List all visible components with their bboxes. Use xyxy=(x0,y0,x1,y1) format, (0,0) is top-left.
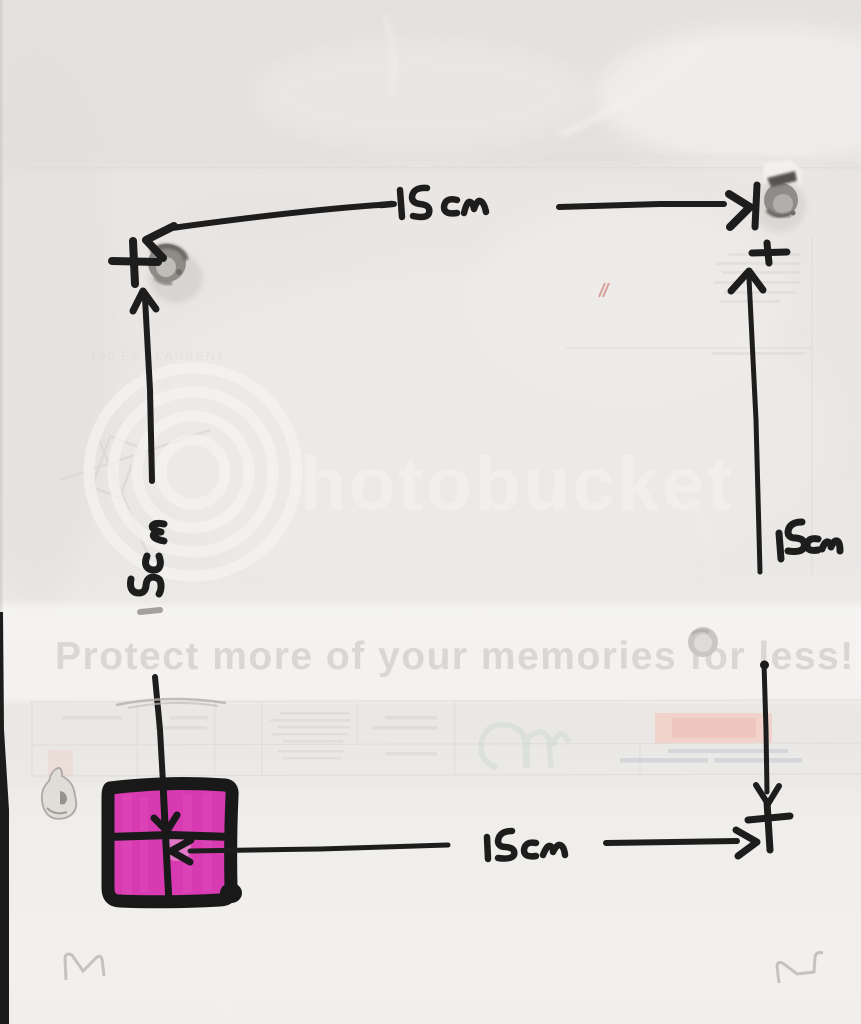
svg-text:190 EST LAURENT: 190 EST LAURENT xyxy=(90,349,226,363)
svg-text:Protect more of your memories: Protect more of your memories for less! xyxy=(55,635,855,678)
svg-text:hotobucket: hotobucket xyxy=(300,442,735,527)
